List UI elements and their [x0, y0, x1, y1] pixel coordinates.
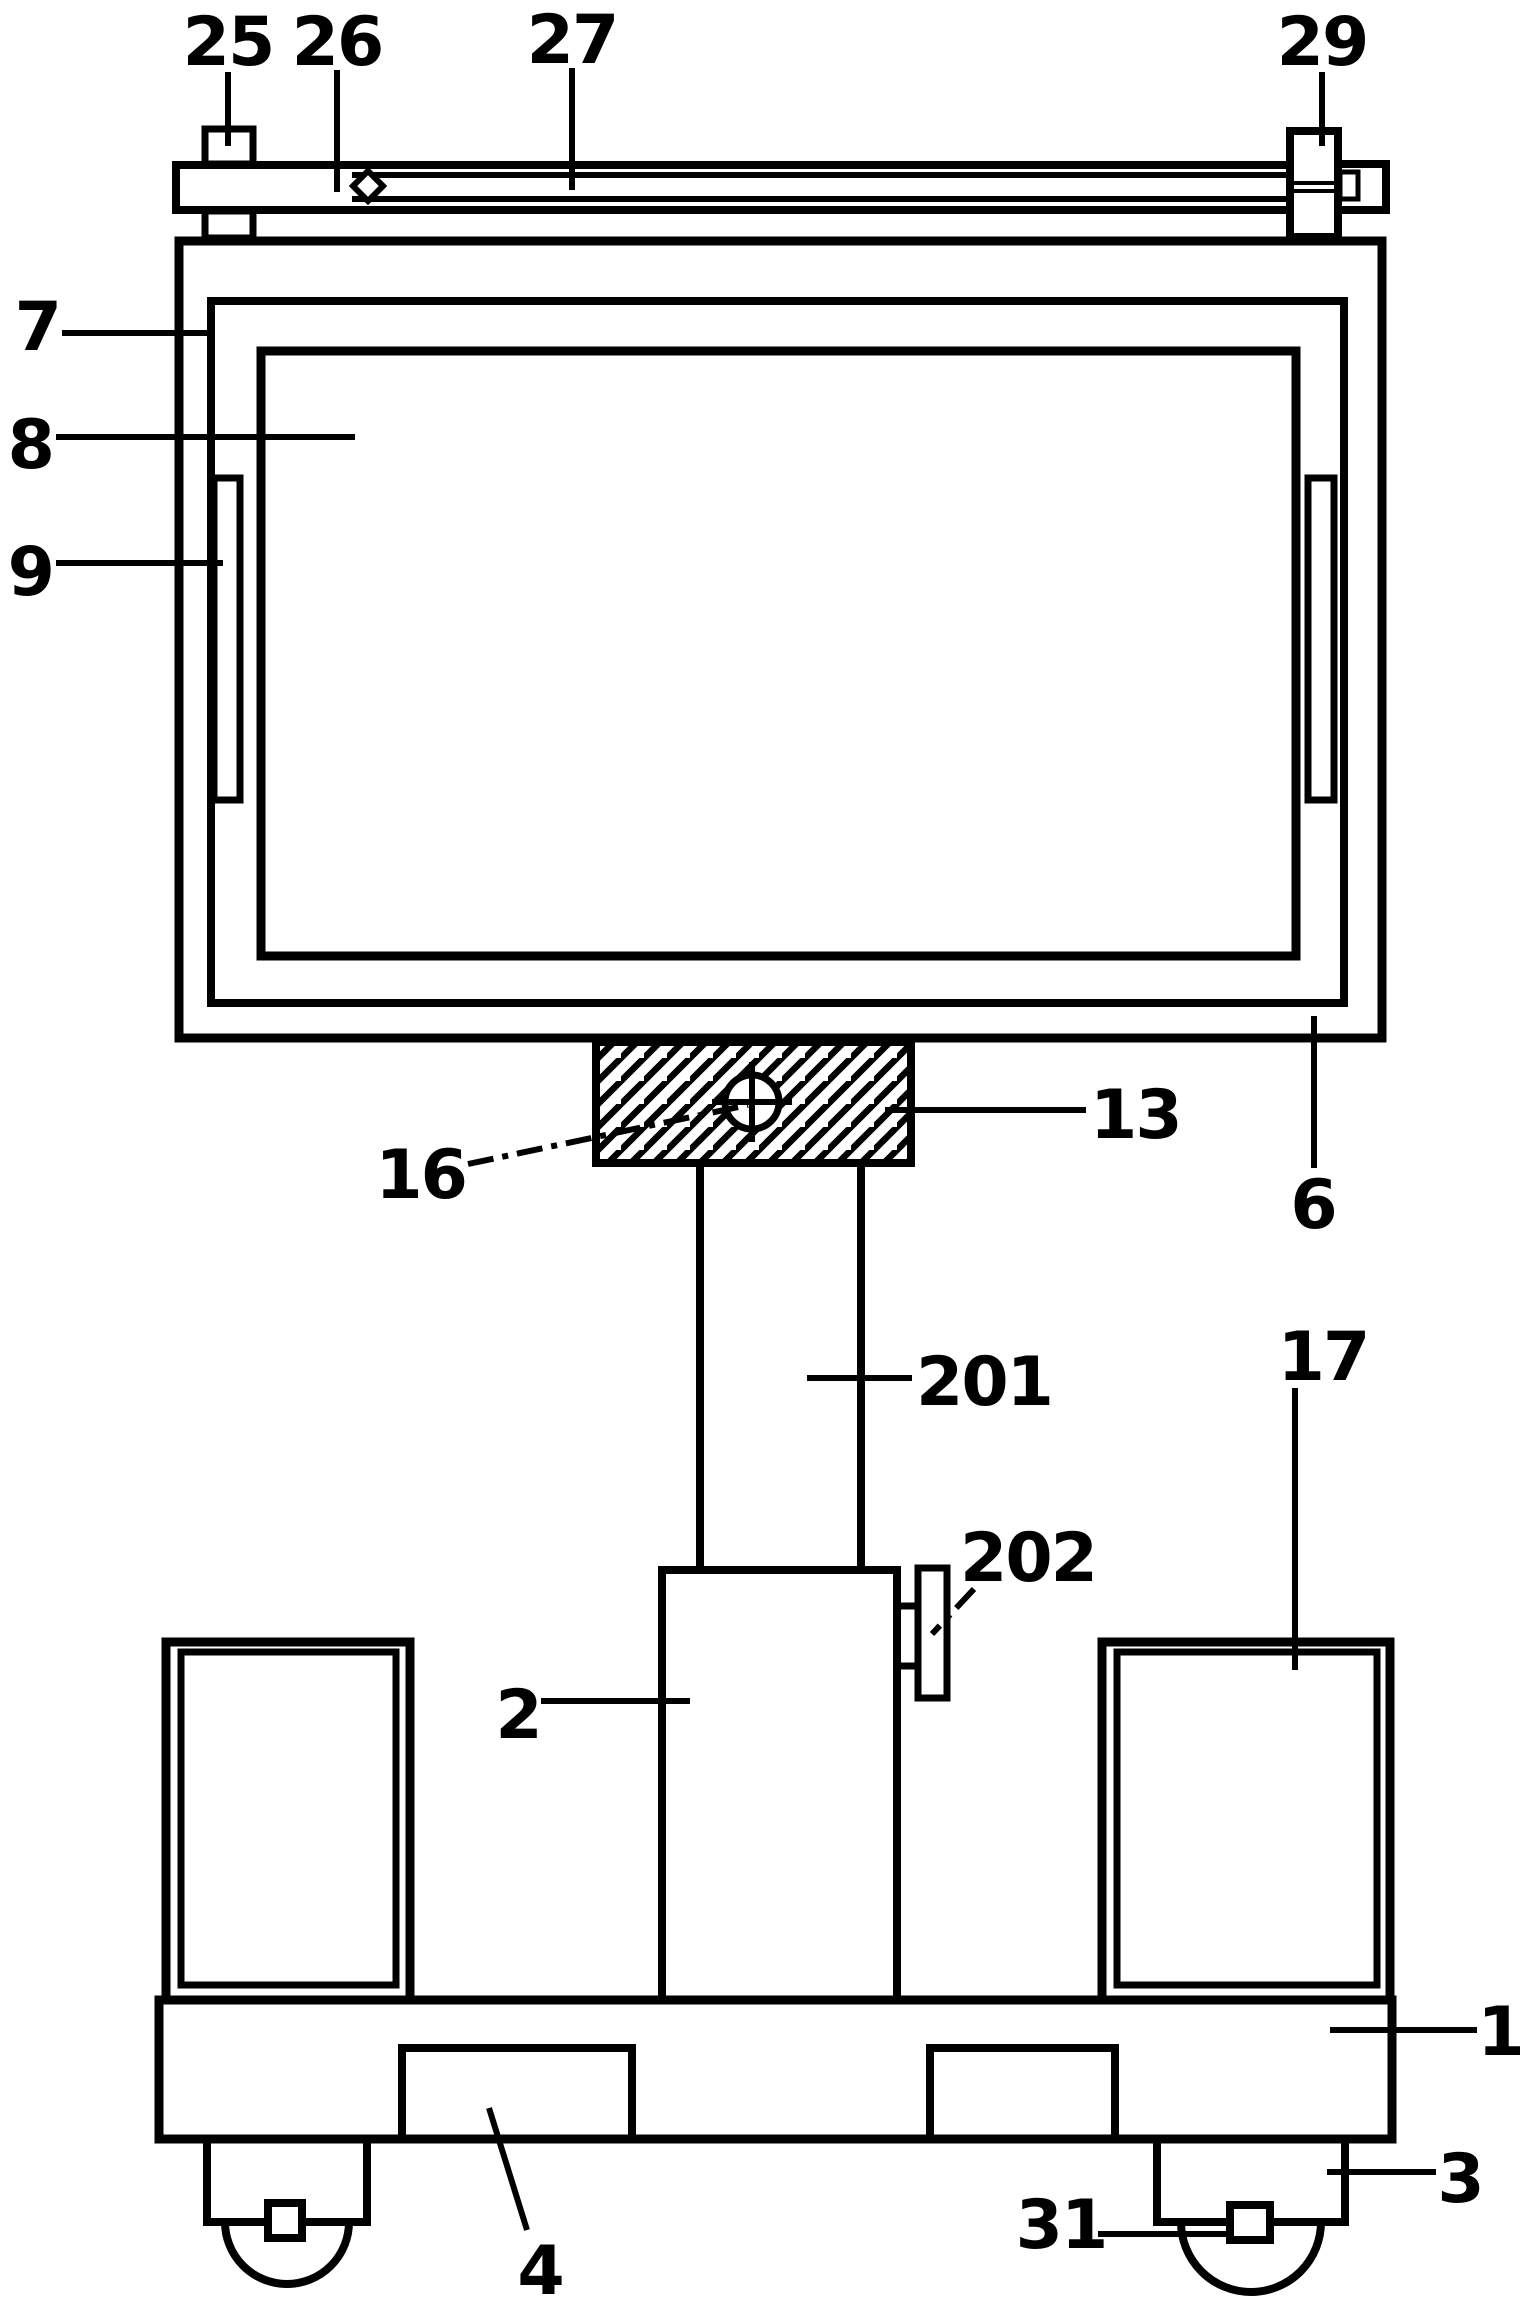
lift-column-2 [662, 1570, 897, 2000]
guide-strip-right [1308, 478, 1334, 800]
label-25: 25 [183, 3, 274, 82]
rail-end-cap-notch [1340, 172, 1358, 199]
label-3: 3 [1437, 2140, 1482, 2219]
base-platform-1 [159, 2000, 1392, 2139]
label-16: 16 [375, 1136, 466, 1215]
rail-slot [352, 175, 1290, 199]
patent-drawing: 25 26 27 29 7 8 9 16 13 6 201 202 17 2 1… [0, 0, 1523, 2298]
platform-slot-right [930, 2048, 1115, 2139]
leader-4 [489, 2108, 527, 2230]
platform-slot-left-4 [402, 2048, 632, 2139]
label-13: 13 [1090, 1076, 1181, 1155]
side-box-right-inner [1117, 1652, 1377, 1985]
label-1: 1 [1477, 1993, 1522, 2072]
label-17: 17 [1278, 1318, 1369, 1397]
label-27: 27 [527, 1, 618, 80]
side-box-right-outer-17 [1102, 1642, 1390, 2000]
label-4: 4 [517, 2232, 562, 2298]
label-6: 6 [1290, 1166, 1335, 1245]
label-201: 201 [916, 1343, 1052, 1422]
label-7: 7 [15, 288, 60, 367]
label-31: 31 [1016, 2186, 1107, 2265]
label-26: 26 [292, 3, 383, 82]
label-2: 2 [495, 1676, 540, 1755]
label-8: 8 [8, 406, 53, 485]
screen-panel [261, 351, 1296, 956]
axle-block-left [268, 2203, 302, 2238]
label-29: 29 [1277, 3, 1368, 82]
side-box-left-outer [166, 1642, 410, 2000]
side-box-left-inner [181, 1652, 396, 1985]
label-9: 9 [8, 533, 53, 612]
label-202: 202 [960, 1519, 1096, 1598]
guide-strip-left [214, 478, 240, 800]
figure-canvas: 25 26 27 29 7 8 9 16 13 6 201 202 17 2 1… [0, 0, 1523, 2298]
support-pole-201 [700, 1163, 861, 1572]
axle-block-right-31 [1230, 2205, 1270, 2240]
rail-hanger-left [205, 211, 253, 238]
